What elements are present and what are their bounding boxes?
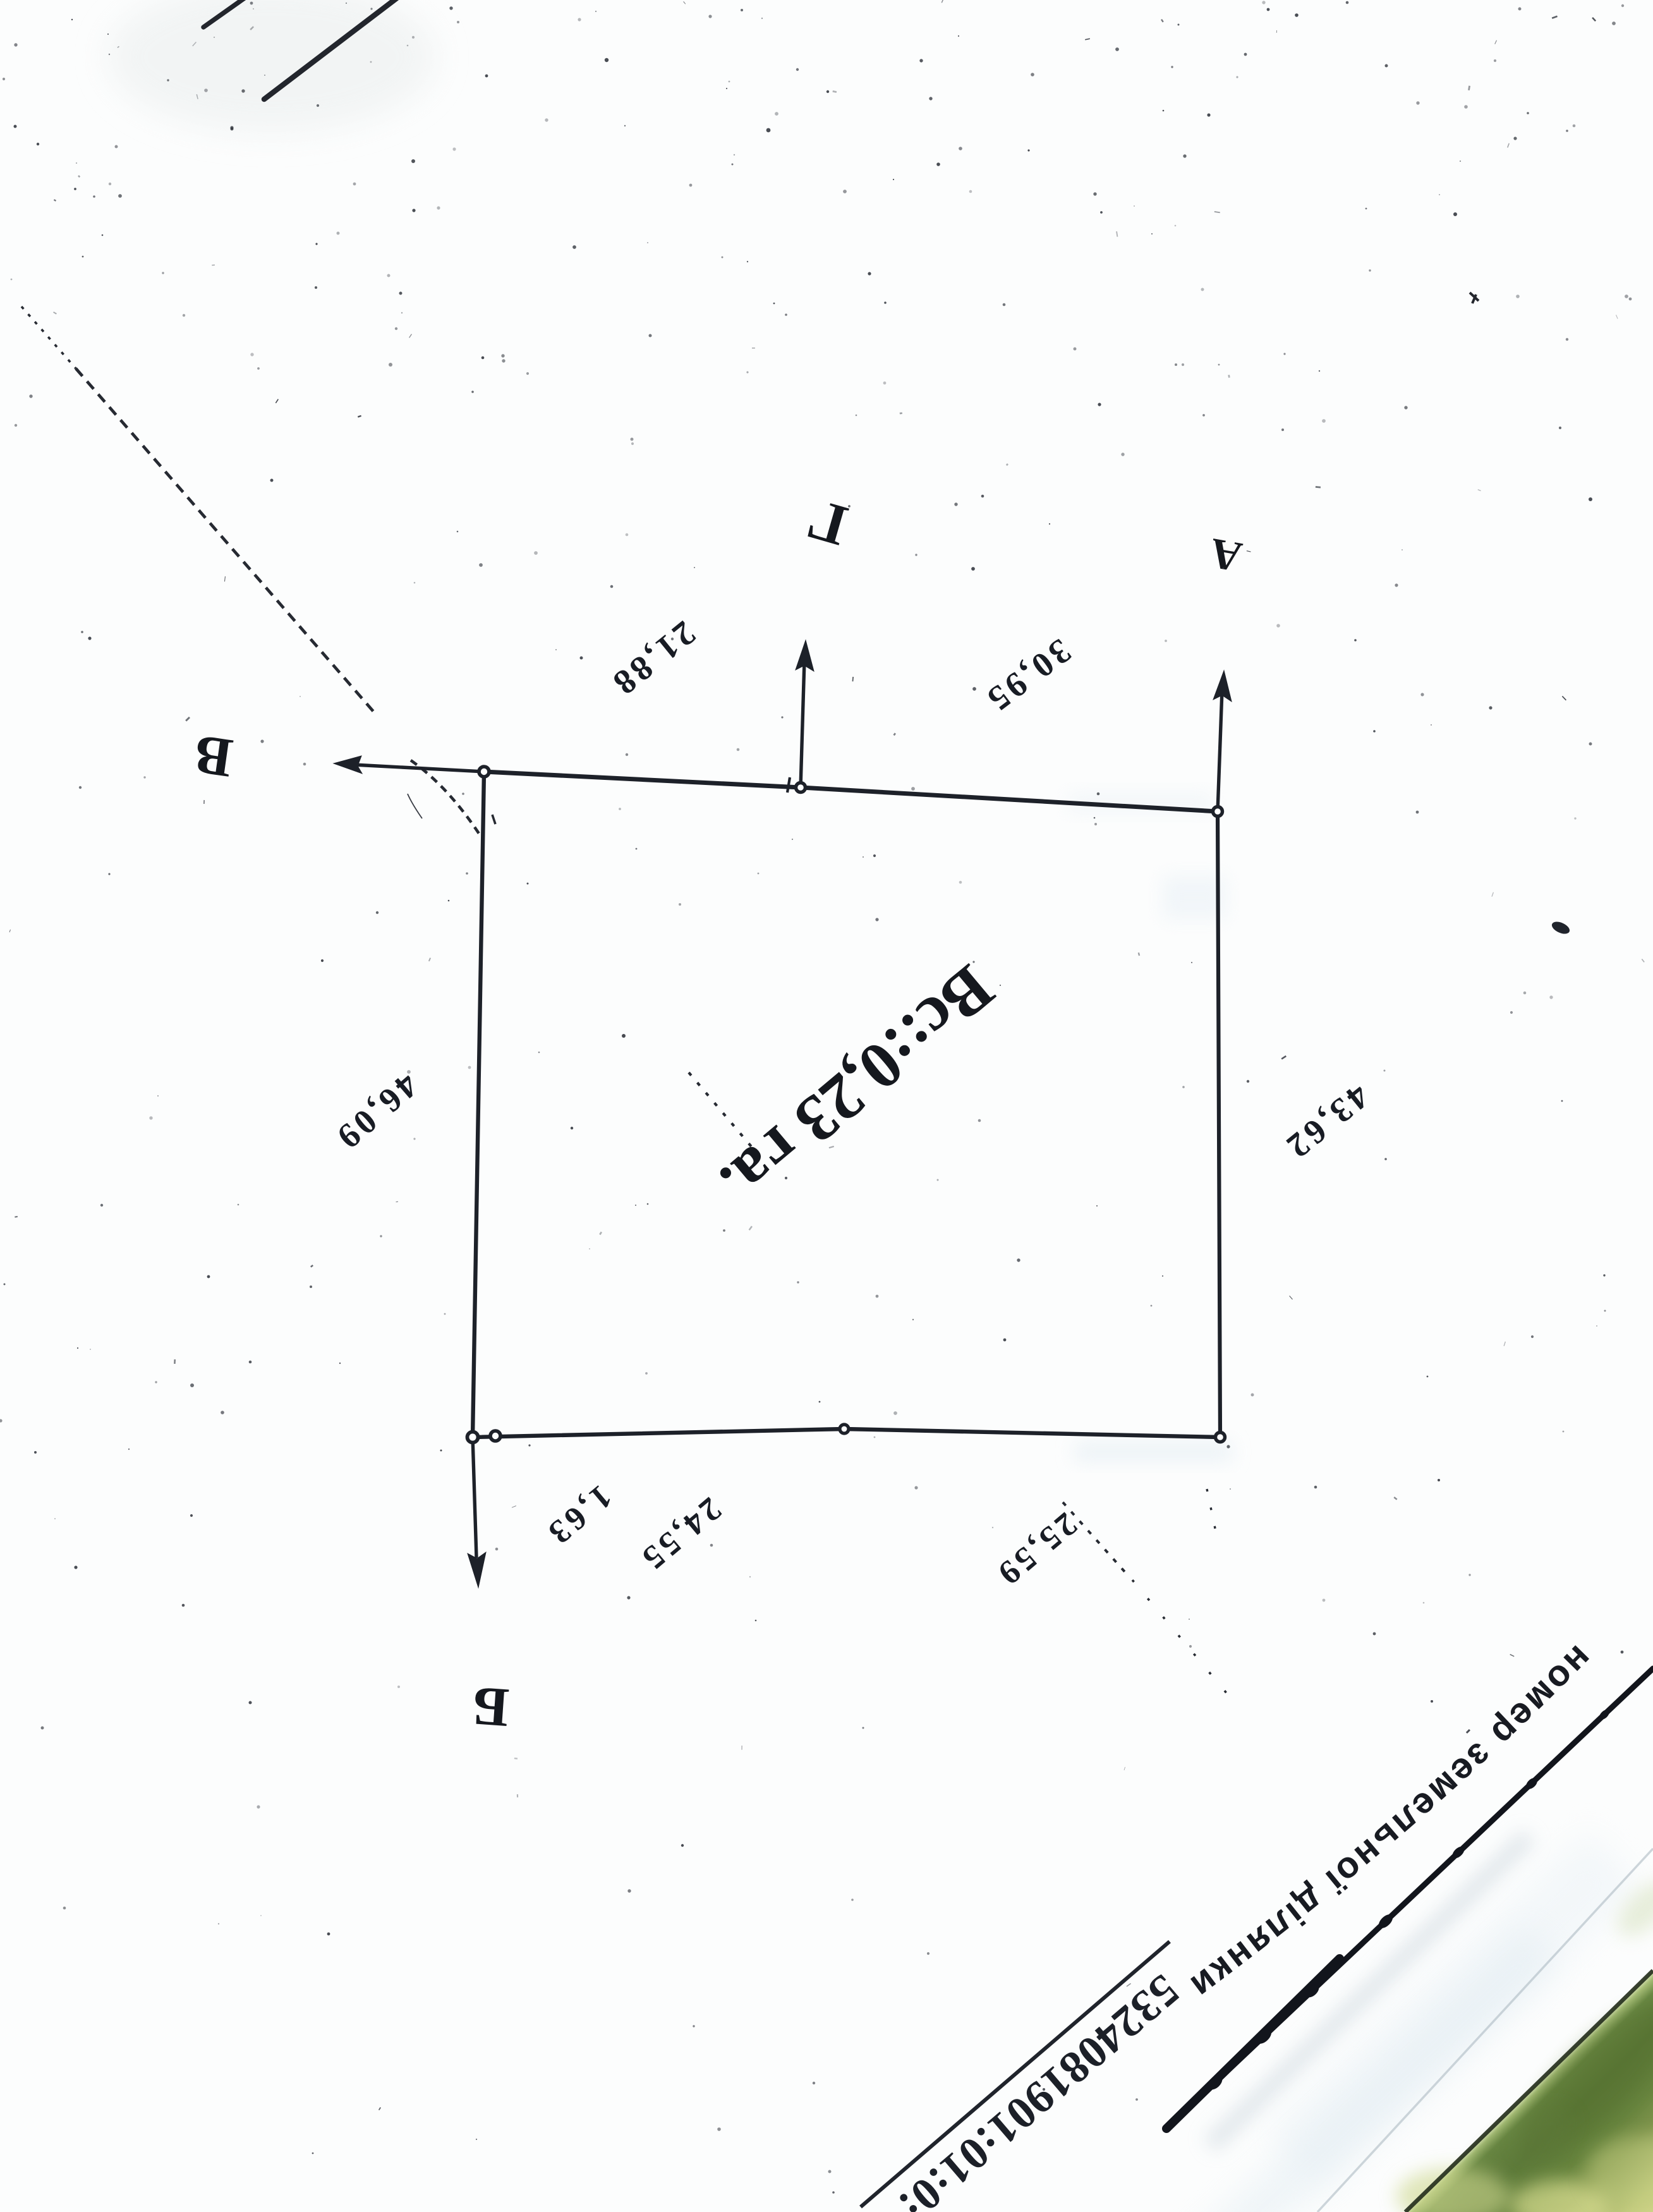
svg-text:Б: Б xyxy=(470,1675,511,1739)
